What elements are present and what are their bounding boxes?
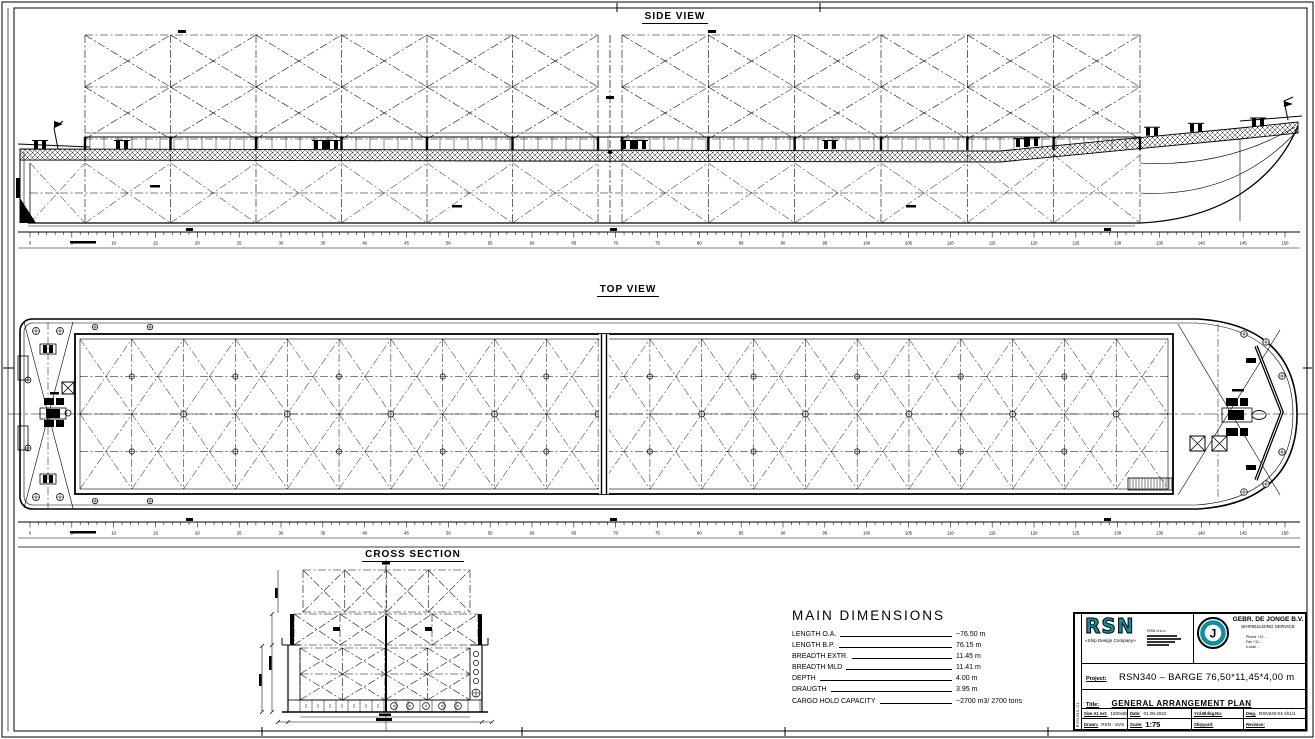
leader-line: [839, 646, 952, 648]
svg-text:75: 75: [655, 241, 660, 246]
svg-text:0: 0: [29, 531, 32, 536]
side-view-drawing: [16, 30, 1302, 226]
svg-text:105: 105: [905, 531, 913, 536]
svg-text:35: 35: [320, 241, 325, 246]
svg-text:60: 60: [530, 241, 535, 246]
cross-section-drawing: [259, 560, 494, 731]
main-dimensions-block: MAIN DIMENSIONS LENGTH O.A.~76.50 m LENG…: [792, 608, 1044, 709]
project-value: RSN340 – BARGE 76,50*11,45*4,00 m: [1119, 672, 1295, 683]
svg-text:55: 55: [488, 241, 493, 246]
svg-text:150: 150: [1282, 241, 1290, 246]
svg-text:35: 35: [320, 531, 325, 536]
dimension-row: BREADTH EXTR.11.45 m: [792, 653, 1044, 660]
dimension-row: DRAUGTH3.95 m: [792, 686, 1044, 693]
builder-contact: Phone +31 ... Fax +31 ... e-mail ...: [1246, 635, 1304, 650]
svg-text:10: 10: [111, 531, 116, 536]
svg-text:45: 45: [404, 241, 409, 246]
svg-text:20: 20: [195, 241, 200, 246]
dimension-row: CARGO HOLD CAPACITY~2700 m3/ 2700 tons: [792, 698, 1044, 705]
cross-section-label: CROSS SECTION: [333, 549, 493, 560]
svg-text:50: 50: [446, 531, 451, 536]
svg-text:0: 0: [29, 241, 32, 246]
svg-text:40: 40: [362, 531, 367, 536]
svg-text:80: 80: [697, 531, 702, 536]
svg-text:20: 20: [195, 531, 200, 536]
leader-line: [840, 635, 952, 637]
svg-text:120: 120: [1031, 241, 1039, 246]
builder-name: GEBR. DE JONGE B.V.: [1232, 616, 1304, 623]
svg-text:30: 30: [279, 531, 284, 536]
svg-text:85: 85: [739, 241, 744, 246]
svg-text:40: 40: [362, 241, 367, 246]
meta-revision: Revision:: [1244, 719, 1305, 729]
designer-logo-cell: RSN «Ship Design Company» RSN d.o.o.: [1082, 614, 1194, 663]
top-view-label: TOP VIEW: [553, 284, 703, 295]
svg-text:105: 105: [905, 241, 913, 246]
svg-text:45: 45: [404, 531, 409, 536]
meta-shipyard: Shipyard:: [1192, 719, 1244, 729]
title-block: RSN340-01 RSN «Ship Design Company» RSN …: [1073, 612, 1307, 731]
svg-text:70: 70: [613, 241, 618, 246]
svg-text:120: 120: [1031, 531, 1039, 536]
svg-text:130: 130: [1114, 531, 1122, 536]
svg-text:100: 100: [863, 241, 871, 246]
svg-text:140: 140: [1198, 531, 1206, 536]
svg-text:115: 115: [989, 241, 996, 246]
svg-text:115: 115: [989, 531, 996, 536]
svg-text:125: 125: [1072, 531, 1080, 536]
svg-text:150: 150: [1282, 531, 1290, 536]
svg-text:100: 100: [863, 531, 871, 536]
title-value: GENERAL ARRANGEMENT PLAN: [1112, 699, 1252, 708]
dimension-row: LENGTH B.P.76.15 m: [792, 642, 1044, 649]
svg-text:75: 75: [655, 531, 660, 536]
svg-text:25: 25: [237, 531, 242, 536]
leader-line: [846, 668, 952, 670]
svg-text:50: 50: [446, 241, 451, 246]
svg-text:25: 25: [237, 241, 242, 246]
meta-dwg-no: Dwg.RSN340-01 sh1/1: [1244, 709, 1305, 719]
builder-logo-cell: J GEBR. DE JONGE B.V. SHIPBUILDING SERVI…: [1194, 614, 1305, 663]
svg-text:95: 95: [823, 241, 828, 246]
top-view-drawing: [8, 319, 1308, 509]
svg-text:145: 145: [1240, 241, 1248, 246]
svg-text:135: 135: [1156, 531, 1164, 536]
drawing-number-vertical: RSN340-01: [1075, 702, 1080, 727]
gebr-de-jonge-logo-icon: J: [1196, 616, 1230, 650]
svg-text:55: 55: [488, 531, 493, 536]
svg-text:95: 95: [823, 531, 828, 536]
svg-text:70: 70: [613, 531, 618, 536]
svg-text:J: J: [1210, 627, 1217, 641]
designer-info: RSN d.o.o.: [1147, 629, 1181, 661]
title-label: Title:: [1086, 702, 1099, 708]
title-block-side-strip: RSN340-01: [1075, 614, 1082, 729]
svg-text:80: 80: [697, 241, 702, 246]
svg-text:10: 10: [111, 241, 116, 246]
svg-text:145: 145: [1240, 531, 1248, 536]
svg-text:90: 90: [781, 531, 786, 536]
drawing-title-row: Title: GENERAL ARRANGEMENT PLAN: [1082, 690, 1305, 709]
leader-line: [852, 657, 952, 659]
svg-text:65: 65: [571, 241, 576, 246]
svg-text:15: 15: [153, 531, 158, 536]
svg-text:140: 140: [1198, 241, 1206, 246]
rsn-tagline: «Ship Design Company»: [1085, 638, 1143, 643]
svg-text:130: 130: [1114, 241, 1122, 246]
builder-subtitle: SHIPBUILDING SERVICE: [1232, 624, 1304, 629]
title-block-meta: Size A1 ext:1000x594 Date:01.08.2022 Yrd…: [1082, 709, 1305, 729]
svg-text:125: 125: [1072, 241, 1080, 246]
svg-text:110: 110: [947, 241, 954, 246]
svg-text:30: 30: [279, 241, 284, 246]
svg-text:135: 135: [1156, 241, 1164, 246]
side-view-frame-ruler: 0510152025303540455055606570758085909510…: [18, 228, 1300, 248]
main-dimensions-title: MAIN DIMENSIONS: [792, 608, 1044, 623]
dimension-row: BREADTH MLD11.41 m: [792, 664, 1044, 671]
svg-text:65: 65: [571, 531, 576, 536]
drawing-sheet: 0510152025303540455055606570758085909510…: [0, 0, 1315, 739]
leader-line: [820, 679, 952, 681]
dimension-row: DEPTH4.00 m: [792, 675, 1044, 682]
svg-text:90: 90: [781, 241, 786, 246]
side-view-label: SIDE VIEW: [600, 11, 750, 22]
meta-drawn: Drawn:RSN - SVS: [1082, 719, 1128, 729]
leader-line: [880, 702, 953, 704]
svg-text:60: 60: [530, 531, 535, 536]
designer-info-lines: [1147, 635, 1181, 645]
project-label: Project:: [1086, 676, 1106, 682]
rsn-logo: RSN: [1085, 617, 1143, 635]
svg-text:85: 85: [739, 531, 744, 536]
meta-scale: Scale:1:75: [1128, 719, 1192, 729]
leader-line: [831, 690, 952, 692]
project-row: Project: RSN340 – BARGE 76,50*11,45*4,00…: [1082, 664, 1305, 690]
svg-text:110: 110: [947, 531, 954, 536]
svg-text:15: 15: [153, 241, 158, 246]
dimension-row: LENGTH O.A.~76.50 m: [792, 631, 1044, 638]
top-view-frame-ruler: 0510152025303540455055606570758085909510…: [18, 518, 1300, 538]
